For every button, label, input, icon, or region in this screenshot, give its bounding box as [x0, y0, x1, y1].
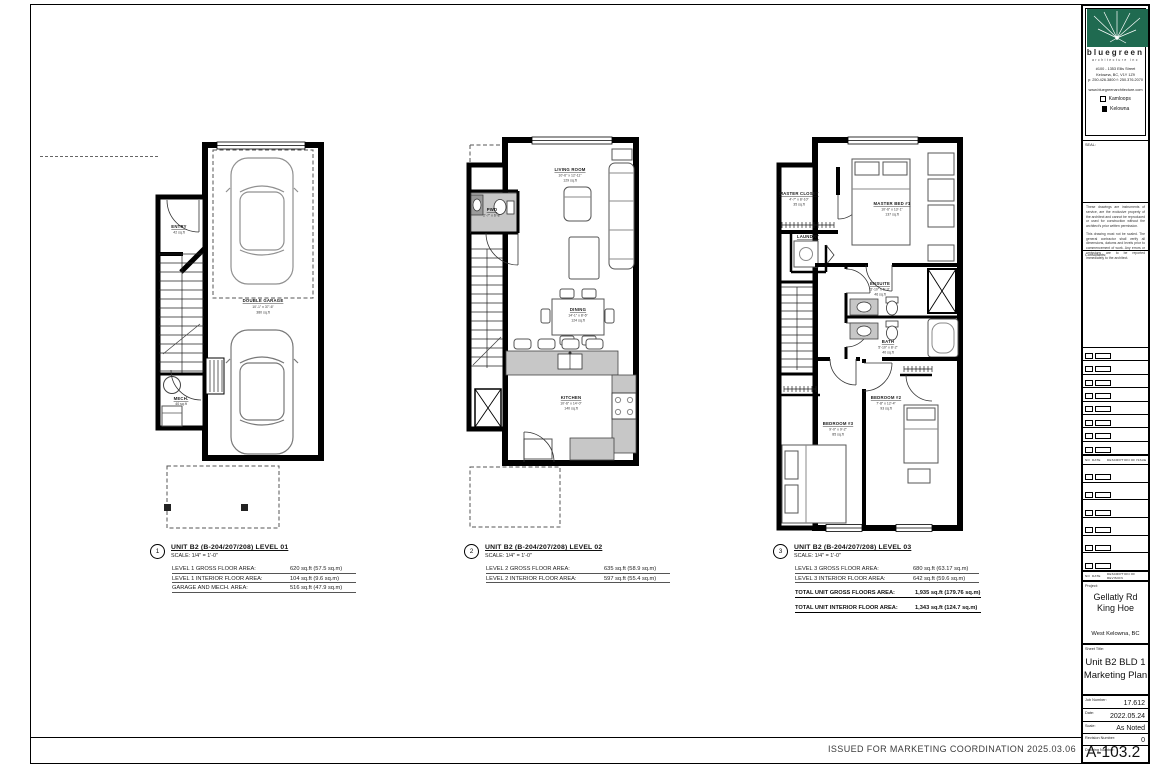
- footer-divider: [31, 737, 1081, 738]
- svg-text:40 sq.ft: 40 sq.ft: [882, 351, 894, 355]
- issue-row: [1083, 428, 1148, 441]
- svg-text:PWD: PWD: [487, 207, 498, 212]
- revision-row: [1083, 553, 1148, 570]
- floor-plan-level-02: LIVING ROOM 10'-6" x 12'-11" 129 sq.ft P…: [466, 137, 644, 535]
- legal-notes: These drawings are instruments of servic…: [1083, 202, 1148, 250]
- area-table: LEVEL 3 GROSS FLOOR AREA:680 sq.ft (63.1…: [795, 565, 979, 583]
- svg-text:ENSUITE: ENSUITE: [870, 281, 890, 286]
- plan-title: UNIT B2 (B-204/207/208) LEVEL 01: [171, 544, 288, 551]
- table-row: GARAGE AND MECH. AREA:516 sq.ft (47.9 sq…: [172, 583, 356, 592]
- plan1-callout: 1 UNIT B2 (B-204/207/208) LEVEL 01 SCALE…: [150, 544, 360, 593]
- svg-text:9'-0" x 9'-2": 9'-0" x 9'-2": [829, 428, 847, 432]
- revision-number-value: 0: [1141, 737, 1145, 744]
- revision-row: [1083, 500, 1148, 518]
- sheet-title-line1: Unit B2 BLD 1: [1083, 656, 1148, 669]
- title-block: bluegreen architecture inc #100 - 1353 E…: [1081, 4, 1150, 764]
- floor-plan-level-01: ENTRY 42 sq.ft MECH. 40 sq.ft DOUBLE GAR…: [155, 142, 327, 537]
- table-row: LEVEL 3 INTERIOR FLOOR AREA:642 sq.ft (5…: [795, 574, 979, 583]
- scale-field: Scale: As Noted: [1083, 721, 1148, 733]
- area-table: LEVEL 1 GROSS FLOOR AREA:620 sq.ft (57.5…: [172, 565, 356, 593]
- kamloops-checkbox-icon: [1100, 96, 1106, 102]
- svg-text:93 sq.ft: 93 sq.ft: [880, 407, 892, 411]
- total-gross-row: TOTAL UNIT GROSS FLOORS AREA: 1,935 sq.f…: [795, 590, 981, 598]
- issue-row: [1083, 361, 1148, 374]
- svg-text:10'-6" x 12'-11": 10'-6" x 12'-11": [558, 174, 582, 178]
- plan3-callout: 3 UNIT B2 (B-204/207/208) LEVEL 03 SCALE…: [773, 544, 983, 613]
- svg-text:124 sq.ft: 124 sq.ft: [571, 319, 584, 323]
- project-location: West Kelowna, BC: [1083, 631, 1148, 637]
- firm-address: #100 - 1353 Ellis Street Kelowna, BC, V1…: [1086, 67, 1145, 84]
- kelowna-checkbox-icon: [1102, 106, 1108, 112]
- table-row: LEVEL 1 INTERIOR FLOOR AREA:104 sq.ft (9…: [172, 574, 356, 583]
- firm-name: bluegreen: [1086, 48, 1145, 57]
- office-kelowna: Kelowna: [1086, 106, 1145, 112]
- detail-number-bubble: 1: [150, 544, 165, 559]
- svg-text:ENTRY: ENTRY: [171, 224, 186, 229]
- drawing-sheet: ENTRY 42 sq.ft MECH. 40 sq.ft DOUBLE GAR…: [0, 0, 1154, 768]
- issue-row: [1083, 348, 1148, 361]
- issue-row: [1083, 402, 1148, 415]
- issue-row: [1083, 415, 1148, 428]
- svg-text:DOUBLE GARAGE: DOUBLE GARAGE: [243, 298, 284, 303]
- svg-text:42 sq.ft: 42 sq.ft: [173, 231, 185, 235]
- revision-table: NO DATE DESCRIPTION OF REVISION: [1083, 464, 1148, 580]
- revision-row: [1083, 518, 1148, 536]
- svg-text:KITCHEN: KITCHEN: [561, 395, 582, 400]
- job-number-field: Job Number: 17.612: [1083, 694, 1148, 708]
- consultants-box: Consultants:: [1083, 250, 1148, 347]
- svg-text:10'-1" x 37'-6": 10'-1" x 37'-6": [252, 305, 274, 309]
- revision-row: [1083, 536, 1148, 554]
- svg-text:46 sq.ft: 46 sq.ft: [874, 293, 886, 297]
- revision-table-header: NO DATE DESCRIPTION OF REVISION: [1083, 570, 1148, 580]
- total-interior-row: TOTAL UNIT INTERIOR FLOOR AREA: 1,343 sq…: [795, 605, 981, 613]
- svg-text:10'-6" x 13'-1": 10'-6" x 13'-1": [881, 208, 903, 212]
- svg-text:137 sq.ft: 137 sq.ft: [885, 213, 898, 217]
- project-name-line2: King Hoe: [1083, 603, 1148, 614]
- date-field: Date: 2022.05.24: [1083, 708, 1148, 721]
- project-block: Project: Gellatly Rd King Hoe West Kelow…: [1083, 580, 1148, 643]
- svg-text:10'-6" x 14'-0": 10'-6" x 14'-0": [560, 402, 582, 406]
- svg-text:DINING: DINING: [570, 307, 587, 312]
- svg-text:140 sq.ft: 140 sq.ft: [564, 407, 577, 411]
- table-row: LEVEL 3 GROSS FLOOR AREA:680 sq.ft (63.1…: [795, 565, 979, 574]
- table-row: LEVEL 2 GROSS FLOOR AREA:635 sq.ft (58.9…: [486, 565, 670, 574]
- svg-text:MECH.: MECH.: [174, 396, 189, 401]
- svg-text:14'-1" x 8'-6": 14'-1" x 8'-6": [568, 314, 588, 318]
- svg-text:35 sq.ft: 35 sq.ft: [793, 203, 805, 207]
- svg-text:MASTER CLOSET: MASTER CLOSET: [779, 191, 819, 196]
- plan-title: UNIT B2 (B-204/207/208) LEVEL 02: [485, 544, 602, 551]
- firm-tagline: architecture inc: [1086, 58, 1145, 62]
- sheet-title-block: Sheet Title: Unit B2 BLD 1 Marketing Pla…: [1083, 643, 1148, 694]
- svg-text:2'-7" x 6'-8": 2'-7" x 6'-8": [483, 214, 501, 218]
- svg-text:5'-10" x 8'-2": 5'-10" x 8'-2": [878, 346, 898, 350]
- firm-identity-block: bluegreen architecture inc #100 - 1353 E…: [1085, 8, 1146, 136]
- scale-value: As Noted: [1116, 725, 1145, 732]
- area-table: LEVEL 2 GROSS FLOOR AREA:635 sq.ft (58.9…: [486, 565, 670, 583]
- issue-status-text: ISSUED FOR MARKETING COORDINATION 2025.0…: [828, 744, 1076, 754]
- svg-text:40 sq.ft: 40 sq.ft: [175, 402, 187, 406]
- floor-plan-level-03: MASTER CLOSET 4'-7" x 8'-10" 35 sq.ft MA…: [776, 137, 966, 535]
- setback-dashed-line: [40, 156, 158, 157]
- job-number-value: 17.612: [1124, 700, 1145, 707]
- issue-table-header: NO DATE DESCRIPTION OF ISSUE: [1083, 454, 1148, 464]
- drawing-number-value: A-103.2: [1086, 744, 1140, 762]
- detail-number-bubble: 3: [773, 544, 788, 559]
- issue-row: [1083, 442, 1148, 454]
- svg-text:129 sq.ft: 129 sq.ft: [563, 179, 576, 183]
- plan-scale: SCALE: 1/4" = 1'-0": [794, 553, 911, 559]
- date-value: 2022.05.24: [1110, 713, 1145, 720]
- revision-row: [1083, 483, 1148, 501]
- svg-text:4'-7" x 8'-10": 4'-7" x 8'-10": [789, 198, 809, 202]
- svg-text:BEDROOM #2: BEDROOM #2: [871, 395, 902, 400]
- issue-row: [1083, 375, 1148, 388]
- table-row: LEVEL 1 GROSS FLOOR AREA:620 sq.ft (57.5…: [172, 565, 356, 574]
- table-row: LEVEL 2 INTERIOR FLOOR AREA:597 sq.ft (5…: [486, 574, 670, 583]
- svg-text:5'-10" x 5'-9": 5'-10" x 5'-9": [870, 288, 890, 292]
- issue-table: NO DATE DESCRIPTION OF ISSUE: [1083, 347, 1148, 464]
- plan-scale: SCALE: 1/4" = 1'-0": [171, 553, 288, 559]
- plan-scale: SCALE: 1/4" = 1'-0": [485, 553, 602, 559]
- sheet-title-line2: Marketing Plan: [1083, 669, 1148, 682]
- bluegreen-logo-icon: [1086, 9, 1149, 47]
- svg-text:LIVING ROOM: LIVING ROOM: [554, 167, 585, 172]
- drawing-number-field: Drawing Number: A-103.2: [1083, 745, 1148, 762]
- revision-row: [1083, 465, 1148, 483]
- office-kamloops: Kamloops: [1086, 96, 1145, 102]
- svg-text:BEDROOM #3: BEDROOM #3: [823, 421, 854, 426]
- plan-title: UNIT B2 (B-204/207/208) LEVEL 03: [794, 544, 911, 551]
- project-name-line1: Gellatly Rd: [1083, 592, 1148, 603]
- svg-text:7'-8" x 12'-4": 7'-8" x 12'-4": [876, 402, 896, 406]
- issue-row: [1083, 388, 1148, 401]
- firm-website: www.bluegreenarchitecture.com: [1086, 88, 1145, 92]
- detail-number-bubble: 2: [464, 544, 479, 559]
- seal-box: SEAL:: [1083, 140, 1148, 202]
- svg-text:85 sq.ft: 85 sq.ft: [832, 433, 844, 437]
- svg-text:MASTER BED #1: MASTER BED #1: [874, 201, 911, 206]
- svg-text:BATH: BATH: [882, 339, 894, 344]
- plan2-callout: 2 UNIT B2 (B-204/207/208) LEVEL 02 SCALE…: [464, 544, 674, 583]
- svg-text:LAUNDRY: LAUNDRY: [797, 234, 819, 239]
- svg-text:380 sq.ft: 380 sq.ft: [256, 311, 269, 315]
